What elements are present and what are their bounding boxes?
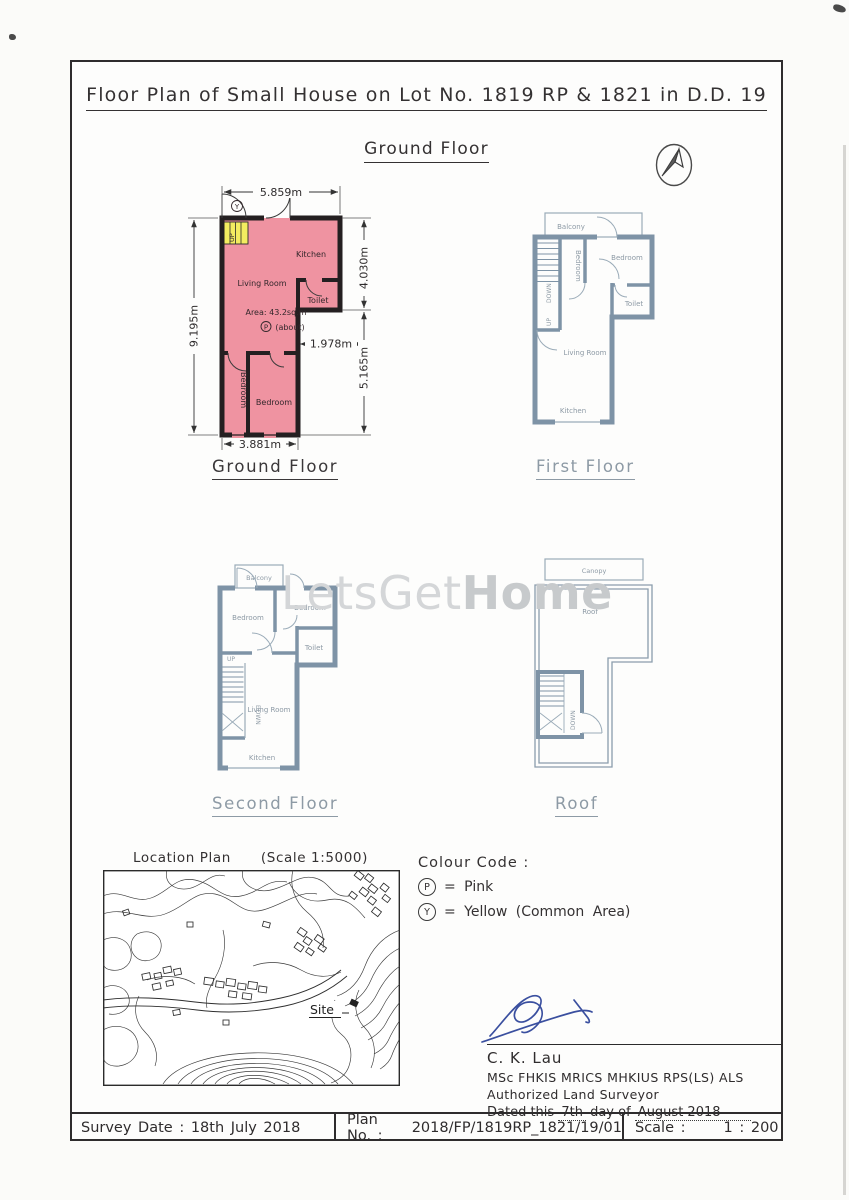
room-bedroom-a: Bedroom [232, 614, 264, 622]
room-toilet: Toilet [307, 296, 329, 305]
scale-cell: Scale : 1 : 200 [624, 1114, 783, 1141]
surveyor-role: Authorized Land Surveyor [487, 1087, 751, 1102]
colour-code-pink-row: P = Pink [418, 878, 630, 896]
room-kitchen: Kitchen [560, 407, 586, 415]
plan-no-value: 2018/FP/1819RP_1821/19/01 [412, 1120, 622, 1136]
survey-date-cell: Survey Date : 18th July 2018 [70, 1114, 336, 1141]
scan-speck [832, 3, 846, 13]
surveyor-qualifications: MSc FHKIS MRICS MHKIUS RPS(LS) ALS [487, 1070, 751, 1085]
stair-down-label: DOWN [254, 705, 261, 725]
dim-right-upper: 4.030m [358, 247, 371, 289]
pink-code-text: = Pink [444, 879, 493, 895]
site-label: Site [310, 1002, 334, 1017]
colour-code-title: Colour Code : [418, 855, 630, 871]
room-bedroom-b: Bedroom [611, 254, 643, 262]
room-living: Living Room [237, 279, 286, 288]
y-letter: Y [234, 203, 240, 211]
stair-down-label: DOWN [546, 283, 553, 303]
room-kitchen: Kitchen [296, 250, 326, 259]
location-map: Site [103, 870, 400, 1086]
room-bedroom-a: Bedroom [239, 372, 248, 408]
scanned-floor-plan-sheet: { "sheet": { "title": "Floor Plan of Sma… [0, 0, 849, 1200]
first-floor-caption: First Floor [536, 457, 635, 480]
circled-y-symbol: Y [418, 903, 436, 921]
survey-date-value: 18th July 2018 [191, 1120, 301, 1136]
plan-no-cell: Plan No. : 2018/FP/1819RP_1821/19/01 [336, 1114, 624, 1141]
stair-treads [537, 243, 559, 282]
stair-diagonals [222, 713, 243, 731]
surveyor-block: C. K. Lau MSc FHKIS MRICS MHKIUS RPS(LS)… [487, 1049, 751, 1120]
room-toilet: Toilet [624, 300, 644, 308]
room-living: Living Room [248, 706, 291, 714]
survey-date-label: Survey Date : [81, 1120, 184, 1136]
sheet-title: Floor Plan of Small House on Lot No. 181… [70, 84, 783, 111]
scan-speck [9, 34, 16, 40]
dim-inner: 1.978m [310, 338, 352, 351]
stair-up-label: UP [546, 318, 553, 326]
door-swing [582, 713, 602, 733]
stair-up-label: UP [228, 233, 236, 242]
stair-treads [222, 667, 244, 702]
area-text: Area: 43.2sq.m [245, 308, 306, 317]
page-edge-shadow [843, 145, 846, 1195]
room-living: Living Room [564, 349, 607, 357]
stair-down-label: DOWN [570, 710, 577, 730]
dim-right-lower: 5.165m [358, 347, 371, 389]
roof-plan: Canopy Roof DOWN [520, 555, 670, 777]
colour-code-block: Colour Code : P = Pink Y = Yellow (Commo… [418, 855, 630, 921]
second-floor-plan: Balcony Bedroom Bedroom Toilet Living Ro… [200, 555, 350, 783]
north-arrow-icon [652, 140, 696, 190]
roof-caption: Roof [555, 794, 598, 817]
room-balcony: Balcony [246, 574, 272, 582]
circled-p-symbol: P [418, 878, 436, 896]
dim-left: 9.195m [188, 305, 201, 347]
room-balcony: Balcony [557, 223, 585, 231]
p-letter: P [264, 324, 268, 332]
scale-label: Scale : [635, 1120, 686, 1136]
stair-up-label: UP [227, 656, 235, 663]
signature-scribble [478, 986, 778, 1044]
second-floor-caption: Second Floor [212, 794, 338, 817]
stair-diagonals [540, 674, 564, 733]
location-plan-scale: (Scale 1:5000) [261, 850, 368, 866]
room-bedroom-b: Bedroom [294, 604, 326, 612]
room-toilet: Toilet [304, 644, 324, 652]
room-bedroom-b: Bedroom [256, 398, 292, 407]
area-about: (about) [275, 323, 304, 332]
plan-no-label: Plan No. : [347, 1112, 405, 1144]
stair-treads [540, 676, 564, 706]
colour-code-yellow-row: Y = Yellow (Common Area) [418, 903, 630, 921]
ground-floor-caption: Ground Floor [212, 457, 338, 480]
ground-floor-plan: 5.859m 9.195m 4.030m 5.165m 1.978m 3.881… [178, 172, 388, 456]
title-block-footer: Survey Date : 18th July 2018 Plan No. : … [70, 1112, 783, 1141]
surveyor-name: C. K. Lau [487, 1049, 751, 1067]
dim-bottom: 3.881m [239, 438, 281, 451]
scale-value: 1 : 200 [724, 1120, 779, 1136]
dim-top: 5.859m [260, 186, 302, 199]
signature-rule [487, 1044, 783, 1045]
room-kitchen: Kitchen [249, 754, 275, 762]
location-plan-title: Location Plan [133, 850, 231, 866]
first-floor-plan: Balcony Bedroom Bedroom Toilet Living Ro… [515, 195, 690, 440]
canopy-label: Canopy [582, 567, 607, 575]
location-plan-heading: Location Plan(Scale 1:5000) [133, 850, 368, 866]
room-bedroom-a: Bedroom [574, 250, 582, 282]
yellow-code-text: = Yellow (Common Area) [444, 904, 630, 920]
roof-label: Roof [582, 608, 598, 616]
